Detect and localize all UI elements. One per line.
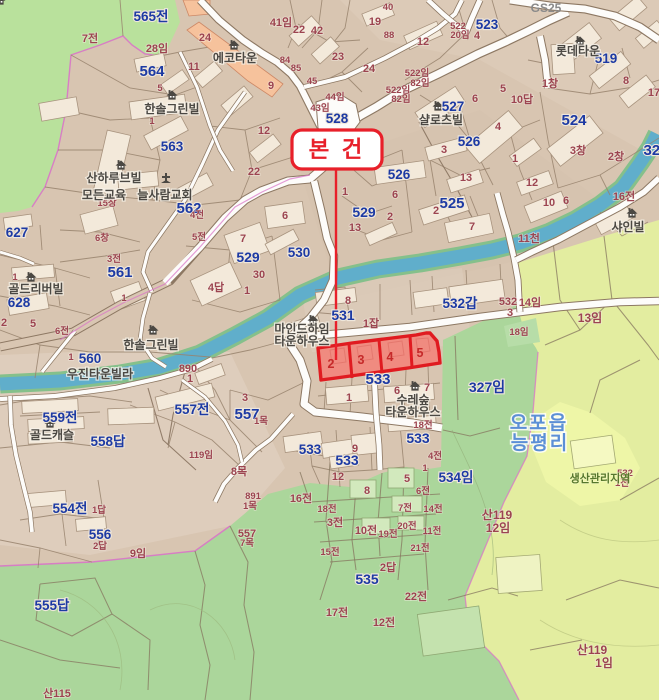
svg-text:1: 1	[346, 392, 352, 404]
svg-text:4: 4	[495, 121, 502, 133]
svg-text:529: 529	[236, 249, 260, 265]
svg-text:14전: 14전	[423, 503, 442, 515]
svg-text:30: 30	[253, 269, 265, 281]
svg-text:5: 5	[417, 346, 424, 360]
svg-text:7전: 7전	[398, 502, 412, 514]
svg-text:534임: 534임	[439, 470, 474, 485]
svg-text:15전: 15전	[320, 546, 339, 558]
svg-text:4답: 4답	[208, 280, 224, 294]
svg-text:12: 12	[526, 177, 538, 189]
svg-text:5: 5	[30, 318, 36, 330]
svg-text:5: 5	[404, 473, 410, 485]
svg-text:23: 23	[332, 51, 344, 63]
svg-text:20전: 20전	[397, 520, 416, 532]
svg-text:17: 17	[648, 87, 659, 99]
svg-text:40: 40	[383, 2, 394, 13]
svg-text:한솔그린빌: 한솔그린빌	[144, 101, 199, 116]
svg-text:628: 628	[8, 295, 31, 310]
svg-text:모든교육: 모든교육	[82, 187, 126, 202]
svg-text:5: 5	[157, 83, 163, 94]
svg-text:7목: 7목	[240, 538, 254, 549]
svg-text:1: 1	[342, 186, 348, 198]
svg-text:1: 1	[121, 293, 127, 304]
svg-text:4전: 4전	[190, 209, 204, 221]
svg-text:13: 13	[349, 222, 361, 234]
svg-text:능평리: 능평리	[511, 432, 569, 454]
svg-text:529: 529	[352, 204, 376, 220]
svg-text:627: 627	[6, 225, 29, 240]
svg-text:1: 1	[68, 352, 74, 363]
svg-text:527: 527	[442, 99, 465, 114]
svg-text:22전: 22전	[405, 589, 427, 603]
svg-text:531: 531	[331, 307, 355, 323]
svg-text:11: 11	[188, 61, 200, 73]
svg-text:22: 22	[293, 24, 305, 36]
svg-text:532갑: 532갑	[443, 296, 479, 311]
svg-text:6창: 6창	[95, 232, 109, 244]
svg-text:45: 45	[307, 76, 318, 87]
svg-text:8: 8	[345, 295, 351, 307]
svg-text:1답: 1답	[92, 504, 106, 516]
svg-text:5전: 5전	[192, 231, 206, 243]
svg-text:8: 8	[623, 75, 629, 87]
svg-text:2답: 2답	[380, 560, 396, 574]
svg-text:오포읍: 오포읍	[510, 412, 568, 434]
svg-text:554전: 554전	[53, 500, 88, 516]
svg-text:산119: 산119	[577, 642, 608, 657]
svg-text:18전: 18전	[413, 419, 432, 431]
svg-text:골드캐슬: 골드캐슬	[30, 428, 74, 442]
svg-text:24: 24	[199, 32, 212, 44]
svg-text:1목: 1목	[254, 416, 268, 427]
svg-text:늘사람교회: 늘사람교회	[137, 187, 192, 202]
svg-text:16전: 16전	[290, 491, 312, 505]
svg-text:561: 561	[107, 264, 132, 281]
svg-text:본 건: 본 건	[309, 137, 366, 162]
svg-text:82임: 82임	[410, 77, 429, 89]
svg-text:4전: 4전	[428, 450, 442, 462]
svg-text:타운하우스: 타운하우스	[385, 404, 440, 419]
svg-text:42: 42	[311, 25, 323, 37]
svg-text:3: 3	[507, 307, 513, 319]
svg-text:19: 19	[369, 16, 381, 28]
svg-text:9임: 9임	[130, 547, 146, 560]
svg-text:44임: 44임	[325, 91, 344, 103]
svg-text:3: 3	[441, 144, 447, 156]
svg-text:28임: 28임	[146, 42, 168, 55]
svg-text:롯데타운: 롯데타운	[556, 43, 600, 58]
svg-text:GS25: GS25	[531, 1, 562, 15]
svg-text:535: 535	[355, 571, 379, 587]
svg-text:2창: 2창	[608, 149, 624, 163]
svg-text:12: 12	[417, 36, 429, 48]
svg-text:85: 85	[291, 63, 302, 74]
svg-text:1창: 1창	[542, 76, 558, 90]
svg-text:41임: 41임	[270, 16, 292, 29]
svg-text:1: 1	[422, 463, 428, 474]
svg-text:565전: 565전	[134, 8, 169, 24]
svg-text:20임: 20임	[450, 29, 469, 41]
svg-text:12전: 12전	[373, 615, 395, 629]
svg-text:24: 24	[363, 63, 376, 75]
svg-text:533: 533	[299, 442, 322, 457]
svg-text:7: 7	[469, 221, 475, 233]
svg-text:에코타운: 에코타운	[213, 50, 257, 65]
svg-text:1: 1	[187, 373, 193, 385]
svg-text:563: 563	[161, 139, 184, 154]
svg-text:5: 5	[500, 83, 506, 95]
svg-text:526: 526	[458, 134, 481, 149]
svg-text:1: 1	[512, 153, 518, 165]
svg-text:9: 9	[268, 80, 274, 92]
svg-text:10답: 10답	[511, 92, 533, 106]
svg-text:타운하우스: 타운하우스	[274, 333, 329, 348]
svg-text:555답: 555답	[35, 597, 71, 613]
svg-text:533: 533	[365, 371, 390, 388]
svg-text:119임: 119임	[189, 449, 213, 461]
svg-text:88: 88	[384, 30, 395, 41]
svg-text:327: 327	[643, 142, 659, 159]
svg-text:16전: 16전	[613, 189, 635, 203]
svg-text:533: 533	[406, 430, 430, 446]
svg-text:3창: 3창	[570, 143, 586, 157]
svg-text:산하루브빌: 산하루브빌	[86, 170, 141, 185]
svg-text:산115: 산115	[43, 686, 71, 700]
svg-text:6: 6	[392, 189, 398, 201]
svg-text:10전: 10전	[355, 523, 377, 537]
svg-text:4: 4	[474, 30, 481, 42]
svg-text:21전: 21전	[410, 542, 429, 554]
svg-text:7전: 7전	[82, 31, 98, 45]
svg-text:557전: 557전	[175, 401, 210, 417]
svg-text:12: 12	[332, 471, 344, 483]
svg-text:4: 4	[387, 350, 394, 364]
svg-text:샬로츠빌: 샬로츠빌	[419, 112, 463, 127]
svg-text:19전: 19전	[378, 528, 397, 540]
svg-text:6전: 6전	[416, 485, 430, 497]
svg-text:564: 564	[139, 63, 165, 80]
svg-text:11천: 11천	[518, 231, 540, 245]
svg-text:3: 3	[242, 392, 248, 404]
svg-text:13임: 13임	[578, 311, 602, 325]
svg-text:10: 10	[543, 197, 555, 209]
svg-text:6: 6	[472, 93, 478, 105]
svg-text:1잡: 1잡	[363, 316, 379, 330]
svg-text:1: 1	[149, 116, 155, 127]
svg-text:18임: 18임	[509, 326, 528, 338]
svg-text:3전: 3전	[327, 515, 343, 529]
svg-text:12임: 12임	[486, 521, 510, 535]
svg-text:8목: 8목	[231, 465, 247, 478]
svg-text:2: 2	[387, 211, 393, 223]
svg-text:2: 2	[328, 357, 335, 371]
svg-text:6전: 6전	[55, 325, 69, 337]
svg-text:6: 6	[563, 195, 569, 207]
svg-text:525: 525	[439, 195, 464, 212]
svg-text:556: 556	[89, 527, 112, 542]
svg-text:8: 8	[364, 485, 370, 497]
svg-text:3: 3	[358, 353, 365, 367]
svg-text:13: 13	[460, 172, 472, 184]
svg-text:17전: 17전	[326, 605, 348, 619]
svg-text:43임: 43임	[310, 102, 329, 114]
svg-text:1목: 1목	[243, 501, 257, 512]
svg-text:559전: 559전	[43, 409, 78, 425]
svg-text:560: 560	[79, 351, 102, 366]
svg-text:산119: 산119	[482, 507, 513, 522]
svg-text:530: 530	[288, 245, 311, 260]
svg-text:558답: 558답	[91, 433, 127, 449]
svg-text:327임: 327임	[469, 379, 505, 395]
svg-text:1: 1	[244, 285, 250, 297]
svg-text:12: 12	[258, 125, 270, 137]
svg-text:한솔그린빌: 한솔그린빌	[123, 337, 178, 352]
svg-text:골드리버빌: 골드리버빌	[8, 281, 63, 296]
svg-text:우진타운빌라: 우진타운빌라	[67, 366, 133, 381]
svg-text:524: 524	[561, 112, 587, 129]
svg-text:6: 6	[282, 210, 288, 222]
svg-text:14임: 14임	[519, 296, 541, 309]
svg-text:18전: 18전	[317, 503, 336, 515]
svg-text:2: 2	[433, 205, 439, 217]
svg-text:9: 9	[352, 443, 358, 455]
svg-text:22: 22	[248, 166, 260, 178]
svg-text:3전: 3전	[107, 253, 121, 265]
svg-text:7: 7	[240, 233, 246, 245]
svg-text:84: 84	[280, 55, 291, 66]
svg-text:생산관리지역: 생산관리지역	[570, 471, 631, 485]
svg-text:샤인빌: 샤인빌	[611, 219, 644, 234]
svg-text:11전: 11전	[423, 525, 442, 537]
svg-text:1임: 1임	[595, 656, 613, 670]
svg-text:2답: 2답	[93, 540, 107, 552]
svg-text:82임: 82임	[391, 93, 410, 105]
svg-text:2: 2	[1, 317, 7, 329]
svg-text:526: 526	[388, 167, 411, 182]
